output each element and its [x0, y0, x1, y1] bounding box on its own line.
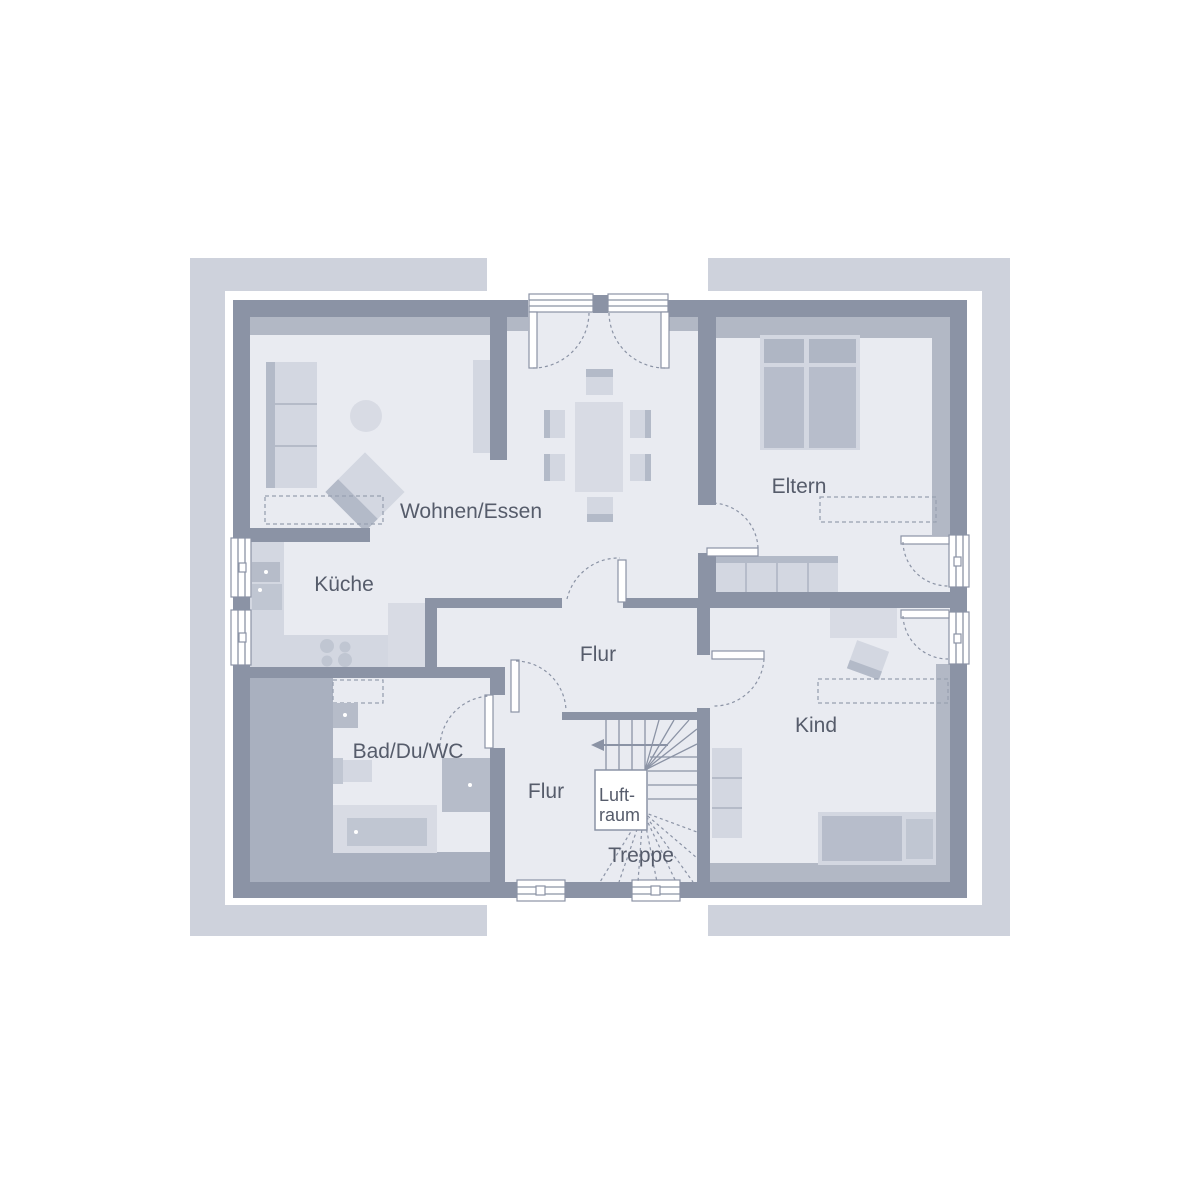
window-kitchen-1	[231, 538, 251, 597]
wall-bath-east-upper	[490, 678, 505, 695]
wall-bottom-right	[680, 882, 967, 898]
mattress	[809, 367, 856, 448]
wall-bottom-mid	[565, 882, 632, 898]
frame-left	[190, 258, 225, 936]
wall-parents-child	[698, 592, 950, 608]
door-frame-left	[529, 294, 593, 312]
label-living-dining: Wohnen/Essen	[400, 500, 542, 523]
wall-dining-parents	[698, 317, 716, 505]
wall-stair-east-upper	[697, 608, 710, 655]
label-hall-main: Flur	[580, 643, 616, 666]
band-child-right	[936, 664, 950, 863]
coffee-table	[350, 400, 382, 432]
label-airspace-2: raum	[599, 805, 640, 825]
wall-hall-north-left	[430, 598, 562, 608]
wall-living-dining	[490, 317, 507, 460]
band-living-top	[250, 317, 490, 335]
band-parents-top	[716, 317, 950, 338]
wall-stair-top	[562, 712, 697, 720]
sofa-backrest	[266, 362, 275, 488]
desk	[830, 605, 897, 638]
wall-hall-north-right	[623, 598, 698, 608]
pillow	[809, 339, 856, 363]
mattress	[764, 367, 804, 448]
shelf	[712, 748, 742, 838]
floor-plan-drawing: Wohnen/Essen Küche Eltern Flur Bad/Du/WC…	[0, 0, 1200, 1200]
kitchen-appliance	[252, 584, 282, 610]
door-frame-right	[608, 294, 668, 312]
wc-tank	[333, 758, 343, 784]
floor-plan-canvas: Wohnen/Essen Küche Eltern Flur Bad/Du/WC…	[0, 0, 1200, 1200]
door-leaf-left	[529, 312, 537, 368]
frame-right	[982, 258, 1010, 936]
window-child	[949, 612, 969, 664]
wall-left-mid	[233, 597, 250, 610]
wall-living-kitchen	[233, 528, 370, 542]
band-child-bottom	[710, 863, 950, 882]
window-stairs	[632, 880, 680, 901]
label-stairs: Treppe	[608, 844, 674, 867]
shelf-cabinet	[473, 360, 490, 453]
wall-right-mid	[950, 587, 967, 612]
gray-zone-bottom	[248, 852, 505, 882]
wall-bath-east-lower	[490, 748, 505, 882]
wardrobe-top	[716, 556, 838, 563]
window-parents	[949, 535, 969, 587]
bathtub	[347, 818, 427, 846]
kitchen-tall-unit	[388, 603, 428, 667]
label-hall-lower: Flur	[528, 780, 564, 803]
wall-bottom-left	[233, 882, 517, 898]
band-dining-left	[507, 317, 528, 331]
wall-left-lower	[233, 665, 250, 898]
frame-top-left	[190, 258, 487, 291]
window-kitchen-2	[231, 610, 251, 665]
frame-top-right	[708, 258, 1010, 291]
label-child: Kind	[795, 714, 837, 737]
label-airspace-1: Luft-	[599, 785, 635, 805]
frame-bottom-right	[708, 905, 1010, 936]
wall-stair-east-lower	[697, 708, 710, 882]
label-parents: Eltern	[772, 475, 827, 498]
bed-mattress	[822, 816, 902, 861]
sofa	[275, 362, 317, 488]
door-leaf-right	[661, 312, 669, 368]
bed-pillow	[906, 819, 933, 859]
wall-top-left	[233, 300, 528, 317]
band-parents-right	[932, 338, 950, 535]
pillow	[764, 339, 804, 363]
gray-zone-left	[248, 678, 333, 882]
label-kitchen: Küche	[314, 573, 374, 596]
window-hall-lower	[517, 880, 565, 901]
label-bath: Bad/Du/WC	[353, 740, 464, 763]
wall-bath-north	[233, 667, 505, 678]
frame-bottom-left	[190, 905, 487, 936]
wall-right-upper	[950, 300, 967, 535]
wall-top-right	[668, 300, 967, 317]
door-mullion	[593, 295, 608, 313]
wall-right-lower	[950, 664, 967, 898]
wall-kitchen-hall	[425, 598, 437, 678]
band-dining-right	[668, 317, 698, 331]
dining-table	[575, 402, 623, 492]
wall-left-upper	[233, 300, 250, 538]
wc	[343, 760, 372, 782]
